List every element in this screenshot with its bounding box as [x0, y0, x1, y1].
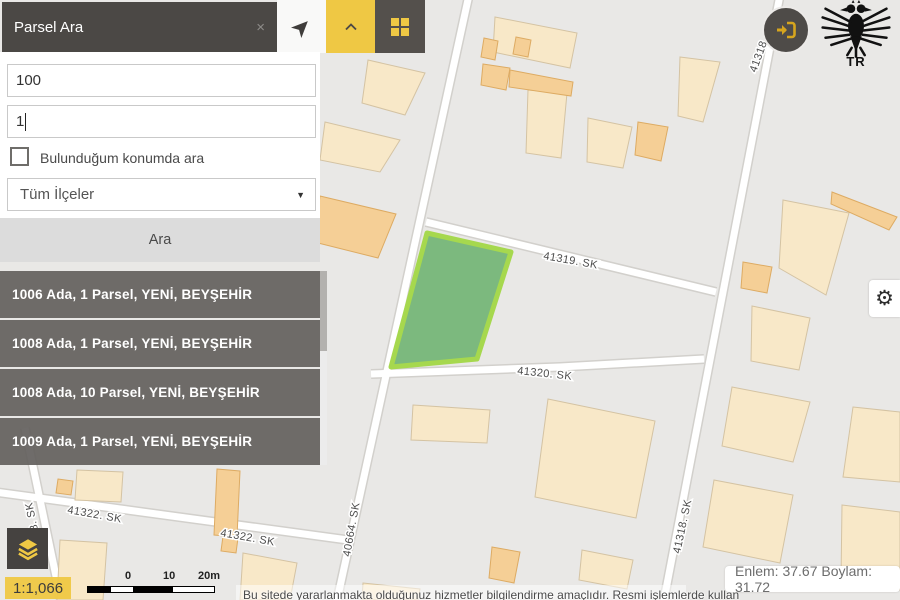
scale-tick-0: 0 [125, 570, 131, 582]
login-arrow-icon [774, 18, 798, 42]
layers-icon [15, 536, 41, 562]
district-select[interactable]: Tüm İlçeler ▼ [7, 178, 316, 211]
coordinates-readout: Enlem: 37.67 Boylam: 31.72 [725, 566, 900, 592]
text-cursor [25, 113, 26, 131]
scrollbar-thumb[interactable] [320, 271, 327, 351]
scale-bar [87, 586, 215, 593]
panel-title: Parsel Ara [14, 19, 83, 36]
logo-tr-text: TR [846, 54, 865, 69]
parsel-input[interactable]: 1 [7, 105, 316, 138]
parcel-search-header: Parsel Ara × [2, 2, 277, 52]
result-item-2[interactable]: 1008 Ada, 1 Parsel, YENİ, BEYŞEHİR [0, 320, 320, 367]
navigation-arrow-icon [291, 16, 313, 38]
apps-grid-button[interactable] [375, 0, 425, 53]
scale-tick-labels: 0 10 20m [87, 570, 219, 583]
close-icon[interactable]: × [256, 19, 265, 36]
scale-tick-10: 10 [163, 570, 175, 582]
chevron-down-icon: ▼ [296, 190, 305, 200]
current-location-checkbox[interactable] [10, 147, 29, 166]
result-item-4[interactable]: 1009 Ada, 1 Parsel, YENİ, BEYŞEHİR [0, 418, 320, 465]
gear-icon: ⚙ [875, 286, 894, 311]
ada-input[interactable]: 100 [7, 64, 316, 97]
double-eagle-icon [819, 0, 893, 58]
disclaimer-text: Bu sitede yararlanmakta olduğunuz hizmet… [243, 588, 739, 600]
settings-button[interactable]: ⚙ [869, 280, 900, 317]
chevron-up-icon [341, 17, 361, 37]
login-button[interactable] [762, 6, 810, 54]
results-scrollbar[interactable] [320, 271, 327, 465]
district-select-value: Tüm İlçeler [20, 186, 94, 203]
scale-tick-20m: 20m [198, 570, 220, 582]
result-item-1[interactable]: 1006 Ada, 1 Parsel, YENİ, BEYŞEHİR [0, 271, 320, 318]
current-location-label: Bulunduğum konumda ara [40, 150, 204, 166]
locate-button[interactable] [277, 0, 326, 53]
collapse-panel-button[interactable] [326, 0, 375, 53]
layers-button[interactable] [7, 528, 48, 569]
result-item-3[interactable]: 1008 Ada, 10 Parsel, YENİ, BEYŞEHİR [0, 369, 320, 416]
grid-icon [390, 17, 410, 37]
tkgm-logo: TR [815, 0, 897, 76]
parsel-input-value: 1 [16, 113, 24, 130]
search-button[interactable]: Ara [0, 218, 320, 262]
scale-ratio-badge: 1:1,066 [5, 577, 71, 599]
ada-input-value: 100 [16, 72, 41, 89]
